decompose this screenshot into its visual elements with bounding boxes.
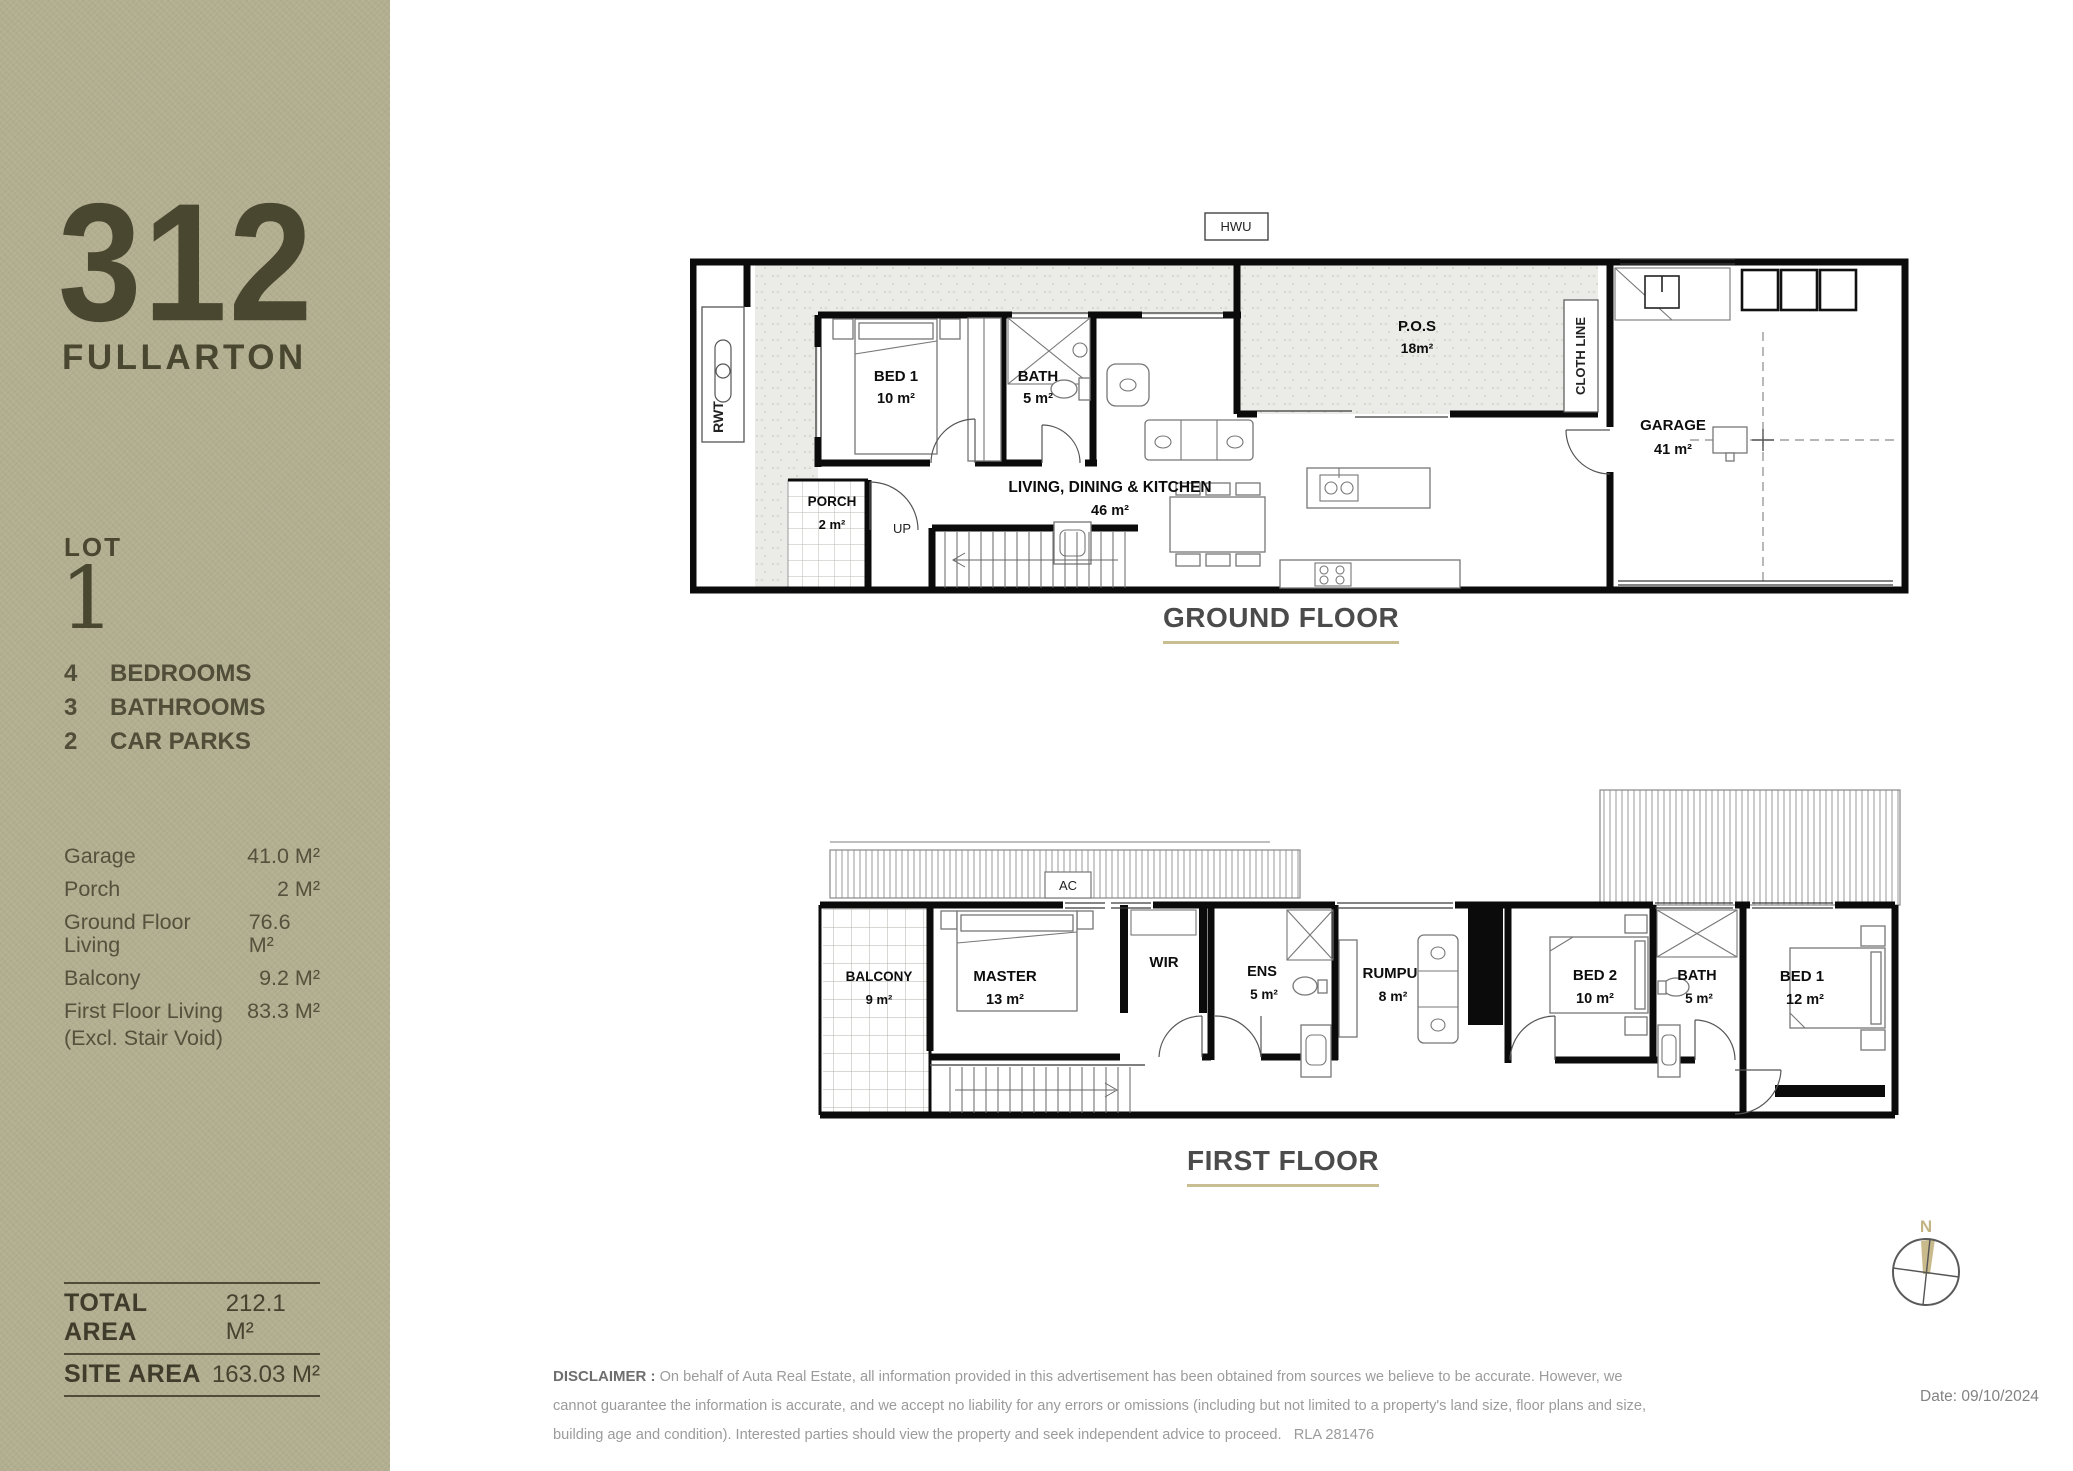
disclaimer-text: On behalf of Auta Real Estate, all infor…	[553, 1369, 1646, 1443]
rwt-label: RWT	[710, 401, 726, 433]
totals-block: TOTAL AREA 212.1 M² SITE AREA 163.03 M²	[64, 1282, 320, 1397]
area-row-porch: Porch 2 M²	[64, 878, 320, 901]
kitchen	[1280, 468, 1460, 588]
bed1-label: BED 1	[874, 368, 918, 385]
ens-area: 5 m²	[1250, 987, 1278, 1002]
feature-list: 4 BEDROOMS 3 BATHROOMS 2 CAR PARKS	[64, 660, 324, 762]
bed1-furniture	[833, 318, 1001, 461]
street-number: 312	[58, 178, 314, 346]
date-stamp: Date: 09/10/2024	[1920, 1388, 2039, 1406]
bath2-label: BATH	[1677, 968, 1716, 984]
site-area-value: 163.03 M²	[212, 1361, 320, 1389]
stairs-up	[945, 532, 1125, 588]
area-label: First Floor Living	[64, 1000, 223, 1023]
first-floor-doors	[1159, 1016, 1781, 1114]
bed1-area: 10 m²	[877, 391, 915, 407]
feature-bedrooms: 4 BEDROOMS	[64, 660, 324, 687]
pos-label: P.O.S	[1398, 318, 1436, 335]
area-value: 41.0 M²	[247, 845, 320, 868]
feature-carparks: 2 CAR PARKS	[64, 728, 324, 755]
garage-label: GARAGE	[1640, 417, 1706, 434]
master-area: 13 m²	[986, 992, 1024, 1008]
rainwater-tank: RWT	[702, 307, 744, 442]
area-value: 83.3 M²	[247, 1000, 320, 1023]
area-label: Balcony	[64, 967, 141, 990]
first-floor-title: FIRST FLOOR	[1187, 1145, 1379, 1187]
area-row-balcony: Balcony 9.2 M²	[64, 967, 320, 990]
wir-label: WIR	[1149, 954, 1178, 971]
carpark-label: CAR PARKS	[110, 728, 251, 755]
sidebar: 312 FULLARTON LOT 1 4 BEDROOMS 3 BATHROO…	[0, 0, 390, 1471]
porch-label: PORCH	[808, 494, 857, 509]
bath2-area: 5 m²	[1685, 991, 1713, 1006]
area-value: 9.2 M²	[259, 967, 320, 990]
ground-floor-plan: RWT HWU	[690, 192, 1912, 607]
roof-areas	[830, 790, 1900, 905]
hwu-label: HWU	[1220, 219, 1251, 234]
bedroom-label: BEDROOMS	[110, 660, 251, 687]
balcony-area: 9 m²	[866, 992, 893, 1007]
ac-label: AC	[1059, 878, 1077, 893]
bed2-label: BED 2	[1573, 967, 1617, 984]
up-label: UP	[893, 521, 911, 536]
garage-area: 41 m²	[1654, 442, 1692, 458]
lot-number: 1	[60, 552, 115, 647]
master-label: MASTER	[973, 968, 1037, 985]
living-area: 46 m²	[1091, 503, 1129, 519]
bed1-first-furniture	[1790, 926, 1885, 1050]
hot-water-unit: HWU	[1205, 213, 1268, 240]
bedroom-count: 4	[64, 660, 110, 687]
area-row-garage: Garage 41.0 M²	[64, 845, 320, 868]
stairs-void	[930, 1065, 1145, 1113]
rumpu-area: 8 m²	[1379, 988, 1408, 1004]
compass-icon: N	[1885, 1205, 1975, 1320]
area-label: Garage	[64, 845, 136, 868]
total-area-value: 212.1 M²	[226, 1290, 320, 1346]
disclaimer: DISCLAIMER : On behalf of Auta Real Esta…	[553, 1362, 1658, 1450]
cloth-line: CLOTH LINE	[1564, 300, 1598, 412]
total-area-label: TOTAL AREA	[64, 1289, 226, 1347]
area-label: Ground Floor Living	[64, 911, 249, 957]
balcony-tiles	[823, 909, 930, 1112]
site-area-label: SITE AREA	[64, 1360, 201, 1389]
bathroom-count: 3	[64, 694, 110, 721]
area-value: 2 M²	[277, 878, 320, 901]
ens-label: ENS	[1247, 964, 1277, 980]
area-label: Porch	[64, 878, 120, 901]
ensuite-fixtures	[1287, 910, 1333, 1077]
bath-label: BATH	[1018, 368, 1059, 385]
porch-area: 2 m²	[819, 517, 846, 532]
site-area-row: SITE AREA 163.03 M²	[64, 1353, 320, 1395]
area-row-first-living: First Floor Living 83.3 M²	[64, 1000, 320, 1023]
ac-unit: AC	[1045, 872, 1091, 898]
area-row-ground-living: Ground Floor Living 76.6 M²	[64, 911, 320, 957]
rumpu-label: RUMPU	[1363, 965, 1418, 982]
first-floor-plan: AC	[815, 783, 1910, 1143]
area-breakdown: Garage 41.0 M² Porch 2 M² Ground Floor L…	[64, 845, 320, 1061]
cloth-line-label: CLOTH LINE	[1573, 317, 1588, 395]
living-label: LIVING, DINING & KITCHEN	[1008, 479, 1211, 496]
disclaimer-label: DISCLAIMER :	[553, 1368, 656, 1385]
floorplan-flyer: 312 FULLARTON LOT 1 4 BEDROOMS 3 BATHROO…	[0, 0, 2073, 1471]
pos-area: 18m²	[1401, 340, 1434, 356]
carpark-count: 2	[64, 728, 110, 755]
area-value: 76.6 M²	[249, 911, 320, 957]
balcony-label: BALCONY	[846, 969, 913, 984]
bed1-first-area: 12 m²	[1786, 992, 1824, 1008]
bath-area: 5 m²	[1023, 391, 1053, 407]
ground-floor-title: GROUND FLOOR	[1163, 602, 1399, 644]
street-name: FULLARTON	[62, 338, 307, 378]
feature-bathrooms: 3 BATHROOMS	[64, 694, 324, 721]
total-area-row: TOTAL AREA 212.1 M²	[64, 1282, 320, 1353]
north-label: N	[1920, 1217, 1932, 1236]
bed2-area: 10 m²	[1576, 991, 1614, 1007]
bed1-first-label: BED 1	[1780, 968, 1824, 985]
bathroom-label: BATHROOMS	[110, 694, 266, 721]
area-sublabel: (Excl. Stair Void)	[64, 1025, 320, 1051]
